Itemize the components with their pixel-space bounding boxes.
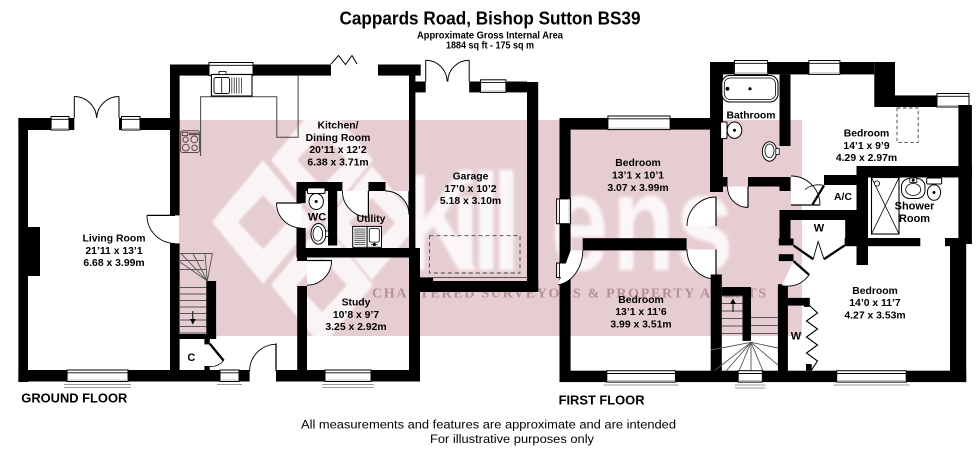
svg-text:6.68 x 3.99m: 6.68 x 3.99m: [83, 258, 144, 269]
svg-text:C: C: [187, 352, 195, 364]
svg-text:4.27 x 3.53m: 4.27 x 3.53m: [844, 310, 905, 321]
svg-text:l: l: [492, 145, 521, 299]
svg-text:W: W: [791, 331, 802, 343]
svg-text:Shower: Shower: [895, 201, 935, 213]
svg-text:Bedroom: Bedroom: [618, 295, 664, 306]
svg-text:14’0 x 11’7: 14’0 x 11’7: [849, 298, 901, 309]
svg-text:Cappards Road, Bishop Sutton B: Cappards Road, Bishop Sutton BS39: [340, 8, 641, 29]
svg-text:Kitchen/: Kitchen/: [318, 121, 359, 132]
svg-text:Bedroom: Bedroom: [844, 129, 890, 140]
svg-text:For illustrative purposes only: For illustrative purposes only: [430, 432, 595, 446]
svg-text:Bedroom: Bedroom: [615, 158, 661, 169]
svg-text:Dining Room: Dining Room: [306, 133, 371, 144]
svg-text:W: W: [814, 222, 825, 234]
svg-text:Bathroom: Bathroom: [726, 110, 775, 121]
svg-text:GROUND FLOOR: GROUND FLOOR: [21, 391, 128, 406]
svg-text:Bedroom: Bedroom: [852, 286, 898, 297]
svg-text:All measurements and features: All measurements and features are approx…: [301, 418, 676, 432]
svg-text:10’8 x 9’7: 10’8 x 9’7: [333, 310, 379, 321]
svg-text:6.38 x 3.71m: 6.38 x 3.71m: [307, 158, 368, 169]
svg-text:13’1 x 10’1: 13’1 x 10’1: [612, 171, 664, 182]
svg-text:Garage: Garage: [453, 172, 489, 183]
svg-text:4.29 x 2.97m: 4.29 x 2.97m: [836, 153, 897, 164]
svg-text:1884 sq ft - 175 sq m: 1884 sq ft - 175 sq m: [446, 41, 534, 52]
svg-text:3.99 x 3.51m: 3.99 x 3.51m: [610, 319, 671, 330]
svg-text:Living Room: Living Room: [83, 234, 146, 245]
svg-text:20’11 x 12’2: 20’11 x 12’2: [309, 145, 366, 156]
svg-text:17’0 x 10’2: 17’0 x 10’2: [445, 184, 497, 195]
svg-text:Room: Room: [899, 213, 930, 225]
svg-text:WC: WC: [308, 212, 326, 224]
svg-text:21’11 x 13’1: 21’11 x 13’1: [85, 246, 142, 257]
svg-text:13’1 x 11’6: 13’1 x 11’6: [615, 307, 667, 318]
svg-text:14’1 x 9’9: 14’1 x 9’9: [843, 141, 889, 152]
svg-text:A/C: A/C: [834, 192, 852, 203]
svg-text:FIRST FLOOR: FIRST FLOOR: [559, 393, 646, 408]
svg-text:3.07 x 3.99m: 3.07 x 3.99m: [607, 183, 668, 194]
svg-text:Utility: Utility: [357, 214, 386, 225]
svg-text:3.25 x 2.92m: 3.25 x 2.92m: [325, 322, 386, 333]
svg-text:Study: Study: [342, 298, 371, 309]
svg-text:5.18 x 3.10m: 5.18 x 3.10m: [440, 196, 501, 207]
